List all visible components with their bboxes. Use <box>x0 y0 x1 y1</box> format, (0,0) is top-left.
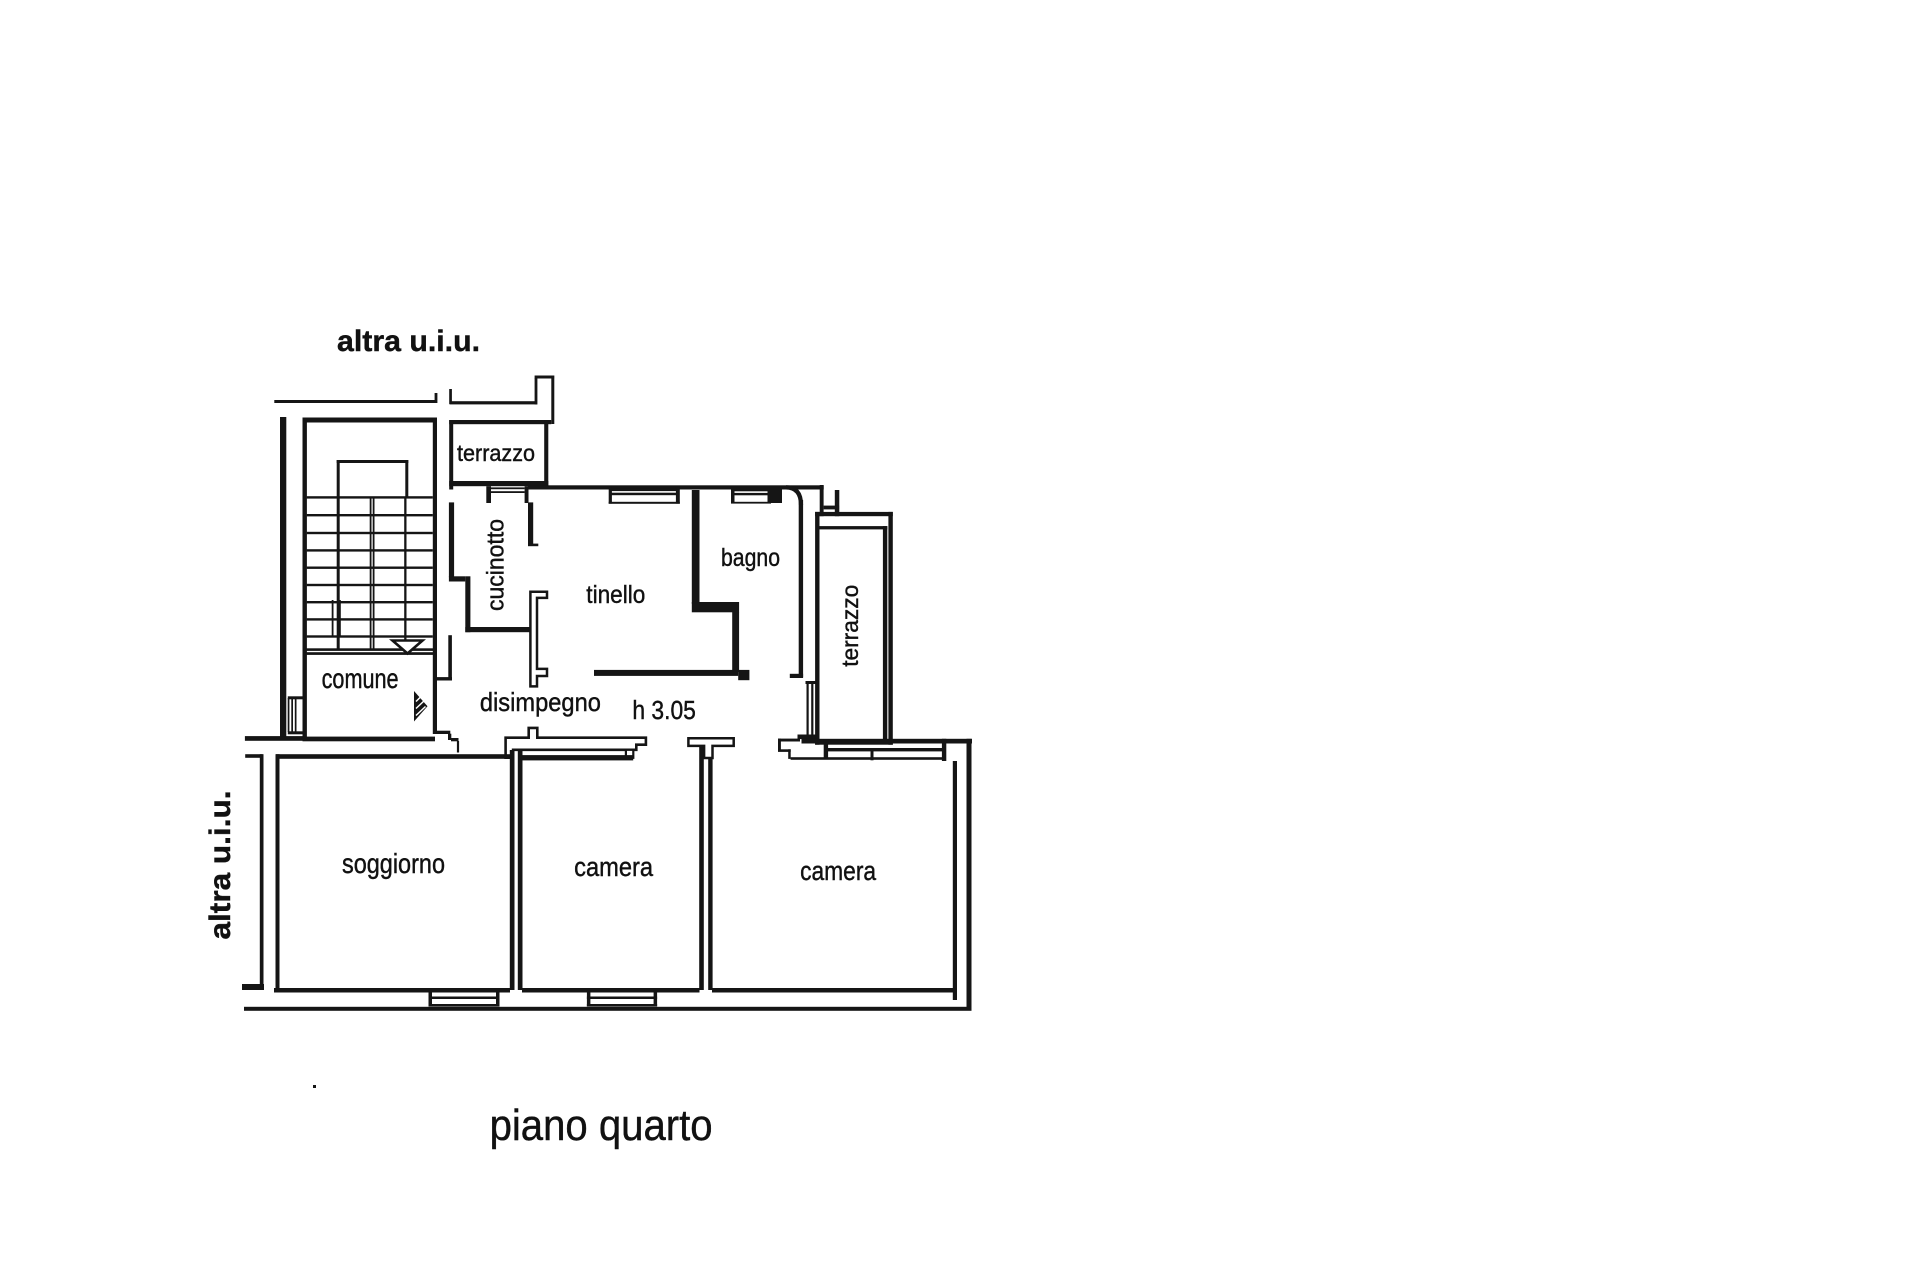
svg-text:bagno: bagno <box>721 544 780 572</box>
svg-text:terrazzo: terrazzo <box>457 440 535 466</box>
svg-text:cucinotto: cucinotto <box>483 519 510 611</box>
svg-text:piano quarto: piano quarto <box>490 1101 713 1150</box>
svg-text:comune: comune <box>322 663 399 694</box>
svg-text:altra u.i.u.: altra u.i.u. <box>204 791 237 940</box>
svg-text:camera: camera <box>800 856 877 886</box>
svg-text:camera: camera <box>574 852 654 882</box>
svg-text:altra u.i.u.: altra u.i.u. <box>337 325 480 358</box>
svg-text:terrazzo: terrazzo <box>837 585 863 667</box>
svg-text:disimpegno: disimpegno <box>480 687 601 717</box>
svg-text:h 3.05: h 3.05 <box>632 697 696 725</box>
svg-text:soggiorno: soggiorno <box>342 848 445 879</box>
svg-text:tinello: tinello <box>586 581 645 609</box>
